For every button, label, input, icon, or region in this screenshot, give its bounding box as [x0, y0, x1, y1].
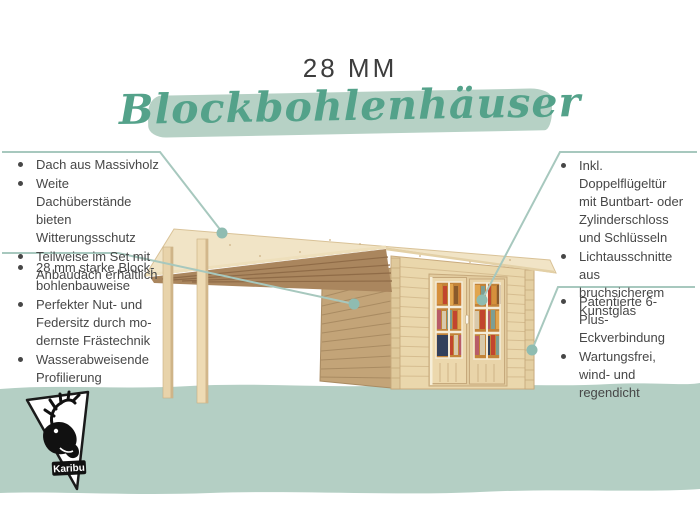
callout-dot-roof: [217, 228, 228, 239]
feature-item: Perfekter Nut- und Federsitz durch mo­de…: [15, 296, 165, 350]
feature-list-left-bottom: 28 mm starke Block­bohlenbauweise Perfek…: [15, 259, 165, 388]
feature-item: Weite Dachüberstände bieten Witterungssc…: [15, 175, 167, 247]
garden-house-illustration: [145, 229, 556, 403]
door-handle: [466, 315, 469, 324]
feature-item: Wartungsfrei, wind- und regen­dicht: [558, 348, 670, 402]
corner-log-right: [525, 270, 534, 389]
callout-dot-corner: [527, 345, 538, 356]
infographic-page: Karibu 28 MM Blockbohlenhäuser Dach aus …: [0, 0, 700, 525]
feature-item: Patentierte 6-Plus-Eckverbindung: [558, 293, 670, 347]
feature-item: 28 mm starke Block­bohlenbauweise: [15, 259, 165, 295]
callout-dot-door: [477, 295, 488, 306]
feature-item: Wasserabweisende Profilierung: [15, 351, 165, 387]
double-glass-door: [429, 274, 507, 386]
feature-list-right-bottom: Patentierte 6-Plus-Eckverbindung Wartung…: [558, 293, 670, 403]
callout-dot-wall: [349, 299, 360, 310]
door-hinge-strip: [430, 277, 433, 385]
feature-item: Dach aus Massivholz: [15, 156, 167, 174]
canopy-post-front: [197, 239, 208, 403]
feature-item: Inkl. Doppelflügeltür mit Buntbart- oder…: [558, 157, 686, 247]
karibu-wordmark: Karibu: [53, 463, 85, 476]
